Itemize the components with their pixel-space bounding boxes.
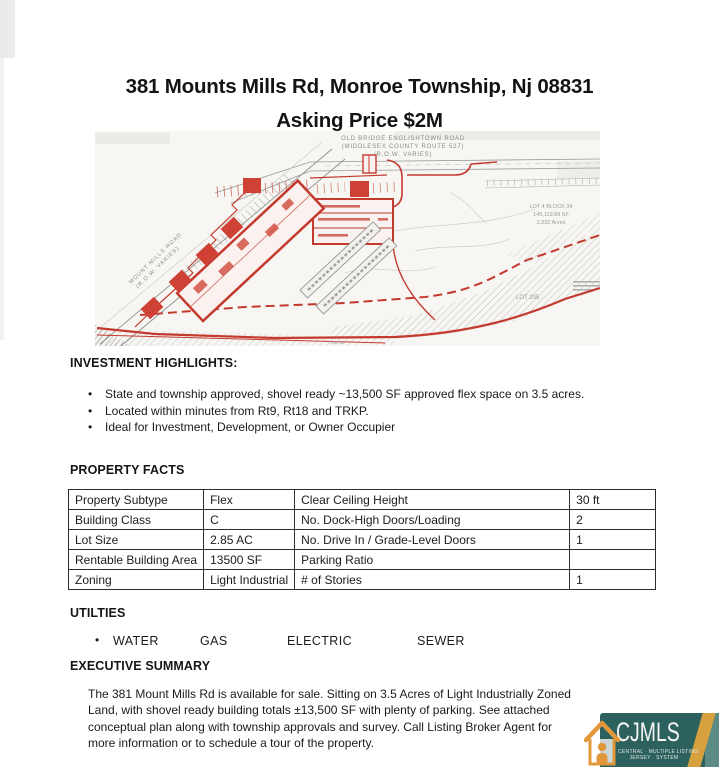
highlight-item: State and township approved, shovel read…: [105, 386, 670, 403]
fact-value: [570, 550, 656, 570]
fact-label: No. Dock-High Doors/Loading: [295, 510, 570, 530]
cjmls-subtitle-line2: JERSEY · SYSTEM: [618, 755, 690, 761]
cjmls-logo-subtitle: CENTRAL · MULTIPLE LISTING JERSEY · SYST…: [618, 749, 690, 761]
house-icon: [583, 718, 621, 767]
fact-value: Light Industrial: [204, 570, 295, 590]
utilities-row: • WATER GAS ELECTRIC SEWER: [70, 634, 630, 650]
building-unit: [243, 178, 261, 193]
dimension-label: 140.50': [330, 340, 346, 346]
utility-item-electric: ELECTRIC: [287, 634, 352, 648]
scanned-listing-page: { "header": { "title_line1": "381 Mounts…: [0, 0, 719, 767]
fact-label: Rentable Building Area: [69, 550, 204, 570]
fact-label: Property Subtype: [69, 490, 204, 510]
utilities-heading: UTILTIES: [70, 606, 630, 620]
page-title-line1: 381 Mounts Mills Rd, Monroe Township, Nj…: [0, 70, 719, 104]
table-row: Building Class C No. Dock-High Doors/Loa…: [69, 510, 656, 530]
top-road-label-3: (R.O.W. VARIES): [374, 152, 433, 158]
property-facts-heading: PROPERTY FACTS: [70, 463, 656, 477]
fact-value: C: [204, 510, 295, 530]
fact-value: 30 ft: [570, 490, 656, 510]
utility-item-sewer: SEWER: [417, 634, 465, 648]
central-building: [313, 199, 393, 244]
investment-highlights-heading: INVESTMENT HIGHLIGHTS:: [70, 356, 670, 370]
fact-label: Zoning: [69, 570, 204, 590]
building-unit: [350, 181, 369, 197]
fact-label: No. Drive In / Grade-Level Doors: [295, 530, 570, 550]
lot205-label: LOT 205: [516, 295, 540, 301]
lot4-line1: LOT 4 BLOCK 34: [529, 204, 572, 210]
fact-label: # of Stories: [295, 570, 570, 590]
fact-label: Lot Size: [69, 530, 204, 550]
executive-summary-body: The 381 Mount Mills Rd is available for …: [70, 686, 670, 752]
investment-highlights-list: State and township approved, shovel read…: [70, 386, 670, 436]
investment-highlights-section: INVESTMENT HIGHLIGHTS: State and townshi…: [70, 356, 670, 436]
executive-summary-heading: EXECUTIVE SUMMARY: [70, 659, 670, 673]
fact-value: 13500 SF: [204, 550, 295, 570]
utility-item-water: WATER: [113, 634, 159, 648]
site-plan-svg: OLD BRIDGE ENGLISHTOWN ROAD (MIDDLESEX C…: [95, 131, 600, 346]
table-row: Rentable Building Area 13500 SF Parking …: [69, 550, 656, 570]
fact-value: 2.85 AC: [204, 530, 295, 550]
fact-label: Parking Ratio: [295, 550, 570, 570]
property-facts-table: Property Subtype Flex Clear Ceiling Heig…: [68, 489, 656, 590]
highlight-item: Ideal for Investment, Development, or Ow…: [105, 419, 670, 436]
bullet-glyph: •: [95, 633, 100, 647]
cjmls-watermark: CJMLS CENTRAL · MULTIPLE LISTING JERSEY …: [583, 710, 719, 767]
highlight-item: Located within minutes from Rt9, Rt18 an…: [105, 403, 670, 420]
lot4-line2: 145,119.89 SF: [533, 212, 569, 218]
fact-value: 1: [570, 530, 656, 550]
site-plan-image: OLD BRIDGE ENGLISHTOWN ROAD (MIDDLESEX C…: [95, 131, 600, 346]
table-row: Zoning Light Industrial # of Stories 1: [69, 570, 656, 590]
scan-smudge: [95, 133, 170, 144]
property-facts-section: PROPERTY FACTS Property Subtype Flex Cle…: [70, 463, 656, 590]
table-row: Lot Size 2.85 AC No. Drive In / Grade-Le…: [69, 530, 656, 550]
utility-item-gas: GAS: [200, 634, 228, 648]
fact-value: 2: [570, 510, 656, 530]
fact-value: Flex: [204, 490, 295, 510]
fact-label: Building Class: [69, 510, 204, 530]
fact-label: Clear Ceiling Height: [295, 490, 570, 510]
scan-smudge: [557, 161, 600, 179]
scan-edge: [0, 0, 15, 58]
top-road-label-2: (MIDDLESEX COUNTY ROUTE 527): [342, 144, 464, 150]
table-row: Property Subtype Flex Clear Ceiling Heig…: [69, 490, 656, 510]
page-title: 381 Mounts Mills Rd, Monroe Township, Nj…: [0, 70, 719, 138]
cjmls-logo-text: CJMLS: [616, 719, 680, 746]
summary-line: The 381 Mount Mills Rd is available for …: [88, 686, 670, 702]
utilities-section: UTILTIES • WATER GAS ELECTRIC SEWER: [70, 606, 630, 650]
top-road-label-1: OLD BRIDGE ENGLISHTOWN ROAD: [341, 136, 465, 142]
lot4-line3: 3.332 Acres: [536, 220, 565, 226]
executive-summary-section: EXECUTIVE SUMMARY The 381 Mount Mills Rd…: [70, 659, 670, 752]
fact-value: 1: [570, 570, 656, 590]
